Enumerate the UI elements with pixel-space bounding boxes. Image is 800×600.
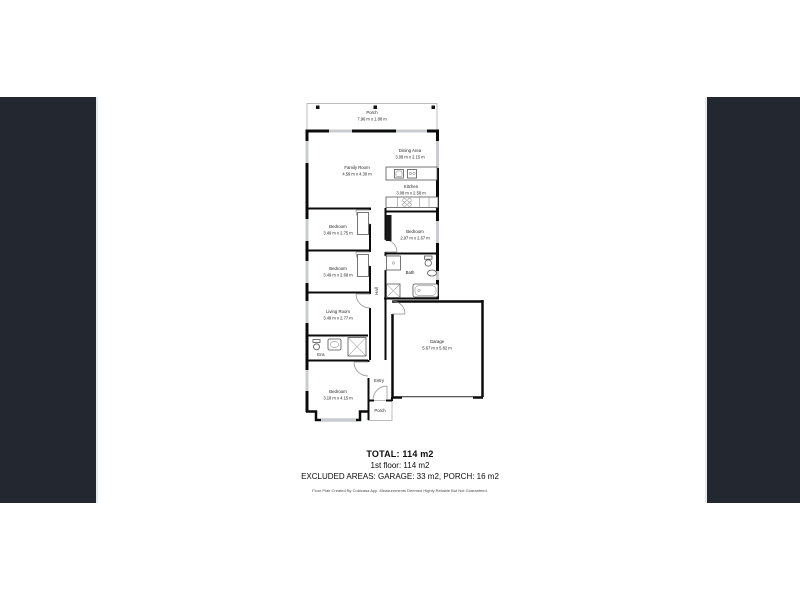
toilet-icon: [425, 256, 433, 266]
room-dims-bedroom-2: 2.97 m x 2.67 m: [400, 236, 430, 241]
room-label-ensuite: Ens: [317, 352, 324, 357]
porch-post-icon: [432, 106, 436, 110]
ens-toilet-icon: [313, 340, 320, 350]
room-dims-dining-area: 3.08 m x 2.15 m: [395, 155, 425, 160]
room-dims-bedroom-1: 3.49 m x 2.75 m: [323, 231, 353, 236]
robe-icon: [358, 255, 369, 277]
room-dims-living-room: 3.49 m x 2.77 m: [323, 316, 353, 321]
room-dims-porch-top: 7.96 m x 1.88 m: [357, 117, 387, 122]
bath-sink-icon: [428, 270, 437, 276]
floorplan-page: Porch 7.96 m x 1.88 m Family Room 4.59 m…: [0, 0, 800, 600]
kitchen-counter: [386, 197, 438, 208]
room-dims-garage: 5.67 m x 5.82 m: [422, 346, 452, 351]
room-dims-family-room: 4.59 m x 4.30 m: [342, 172, 372, 177]
room-labels: Porch 7.96 m x 1.88 m Family Room 4.59 m…: [317, 110, 452, 413]
room-label-garage: Garage: [430, 339, 445, 344]
room-label-living-room: Living Room: [326, 309, 350, 314]
first-floor-area-text: 1st floor: 114 m2: [0, 461, 800, 470]
room-label-bedroom-1: Bedroom: [329, 224, 347, 229]
floorplan-svg: Porch 7.96 m x 1.88 m Family Room 4.59 m…: [0, 0, 800, 600]
shower-icon: [387, 256, 401, 270]
room-label-bedroom-4: Bedroom: [329, 389, 347, 394]
room-dims-kitchen: 3.08 m x 2.58 m: [396, 191, 426, 196]
kitchen-island: [386, 167, 437, 180]
disclaimer-text: Floor Plan Created By Cubicasa App. Meas…: [0, 488, 800, 493]
bathroom-fixtures: [387, 256, 439, 298]
room-label-porch-top: Porch: [366, 110, 378, 115]
room-label-family-room: Family Room: [344, 165, 370, 170]
excluded-areas-text: EXCLUDED AREAS: GARAGE: 33 m2, PORCH: 16…: [0, 472, 800, 481]
room-label-porch-bottom: Porch: [374, 408, 386, 413]
porch-post-icon: [374, 106, 378, 110]
room-label-bedroom-3: Bedroom: [329, 266, 347, 271]
bathtub-icon: [413, 284, 438, 297]
room-label-dining-area: Dining Area: [399, 148, 422, 153]
room-dims-bedroom-3: 3.49 m x 2.68 m: [323, 273, 353, 278]
room-label-bath: Bath: [406, 270, 415, 275]
room-label-hall: Hall: [374, 287, 379, 294]
door-swings: [354, 210, 405, 400]
room-label-entry: Entry: [374, 378, 385, 383]
robe-icon: [358, 213, 369, 235]
laundry-unit-icon: [387, 284, 401, 298]
room-label-kitchen: Kitchen: [404, 184, 419, 189]
total-area-text: TOTAL: 114 m2: [0, 449, 800, 459]
porch-post-icon: [316, 106, 320, 110]
ens-sink-icon: [328, 339, 341, 350]
wardrobe-icon: [348, 338, 366, 357]
robe-icon: [386, 215, 392, 241]
room-dims-bedroom-4: 3.18 m x 4.15 m: [323, 396, 353, 401]
room-label-bedroom-2: Bedroom: [406, 229, 424, 234]
